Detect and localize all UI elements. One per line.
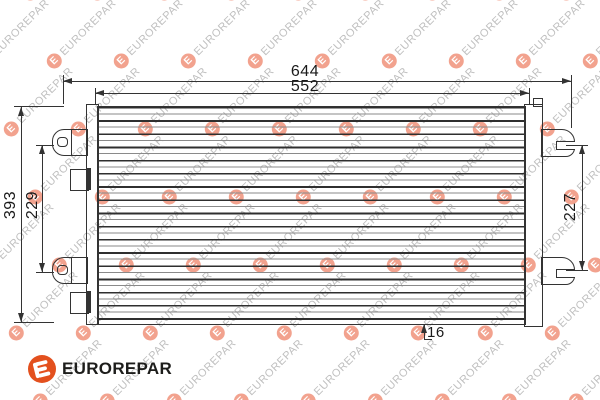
dim-line-left-mount-pitch <box>42 145 43 272</box>
watermark-item: EEUROREPAR <box>355 0 431 4</box>
watermark-text: EUROREPAR <box>124 0 185 58</box>
bracket-seam <box>71 130 72 155</box>
dim-line-overall-height <box>21 107 22 322</box>
arrowhead-up-icon <box>579 145 585 154</box>
eurorepar-mark-icon: E <box>585 254 600 275</box>
watermark-item: EEUROREPAR <box>221 0 297 4</box>
watermark-text: EUROREPAR <box>512 337 573 398</box>
watermark-text: EUROREPAR <box>244 337 305 398</box>
watermark-item: EEUROREPAR <box>365 336 441 400</box>
watermark-text: EUROREPAR <box>14 65 75 126</box>
bracket-hole-icon <box>57 265 68 275</box>
watermark-text: EUROREPAR <box>0 0 51 58</box>
watermark-item: EEUROREPAR <box>499 336 575 400</box>
mounting-bracket-lower-left <box>52 257 88 284</box>
watermark-item: EEUROREPAR <box>432 336 508 400</box>
mounting-pad-lower-left <box>87 291 91 313</box>
mounting-bracket-upper-right <box>541 129 575 157</box>
brand-wordmark: EUROREPAR <box>62 359 172 379</box>
watermark-item: EEUROREPAR <box>312 0 388 72</box>
watermark-item: EEUROREPAR <box>422 0 498 4</box>
ext-line <box>566 270 588 271</box>
brand-logo: EUROREPAR <box>28 355 172 383</box>
watermark-text: EUROREPAR <box>593 0 600 58</box>
mounting-pad-upper-left <box>87 168 91 190</box>
dim-label-depth: 16 <box>427 325 449 340</box>
arrowhead-up-icon <box>18 107 24 116</box>
watermark-text: EUROREPAR <box>526 0 587 58</box>
mounting-bracket-upper-left <box>52 129 88 156</box>
watermark-item: EEUROREPAR <box>154 0 230 4</box>
bracket-hole-icon <box>57 137 68 147</box>
right-header-top-stub <box>533 98 543 107</box>
mounting-bracket-lower-right <box>541 257 575 285</box>
dim-label-overall-height: 393 <box>3 185 19 225</box>
watermark-item: EEUROREPAR <box>298 336 374 400</box>
ext-line <box>36 272 54 273</box>
arrowhead-down-icon <box>18 313 24 322</box>
watermark-item: EEUROREPAR <box>245 0 321 72</box>
watermark-text: EUROREPAR <box>445 337 506 398</box>
arrowhead-down-icon <box>579 261 585 270</box>
watermark-text: EUROREPAR <box>574 133 600 194</box>
watermark-text: EUROREPAR <box>177 337 238 398</box>
arrowhead-down-icon <box>39 263 45 272</box>
watermark-item: EEUROREPAR <box>87 0 163 4</box>
watermark-item: EEUROREPAR <box>164 336 240 400</box>
watermark-item: EEUROREPAR <box>44 0 120 72</box>
watermark-item: EEUROREPAR <box>446 0 522 72</box>
technical-drawing-page: EEUROREPAREEUROREPAREEUROREPAREEUROREPAR… <box>0 0 600 400</box>
watermark-text: EUROREPAR <box>57 0 118 58</box>
watermark-text: EUROREPAR <box>311 337 372 398</box>
watermark-text: EUROREPAR <box>392 0 453 58</box>
watermark-text: EUROREPAR <box>579 337 600 398</box>
arrowhead-left-icon <box>95 90 104 96</box>
watermark-item: EEUROREPAR <box>513 0 589 72</box>
watermark-item: EEUROREPAR <box>20 0 96 4</box>
watermark-item: EEUROREPAR <box>231 336 307 400</box>
watermark-text: EUROREPAR <box>191 0 252 58</box>
dim-label-core-width: 552 <box>283 79 327 95</box>
dim-label-left-mount-pitch: 229 <box>25 185 41 225</box>
arrowhead-left-icon <box>63 78 72 84</box>
watermark-text: EUROREPAR <box>378 337 439 398</box>
dim-line-right-mount-pitch <box>582 145 583 270</box>
ext-line <box>14 322 54 323</box>
watermark-item: EEUROREPAR <box>489 0 565 4</box>
ext-line <box>571 75 572 128</box>
condenser-core <box>97 106 526 325</box>
arrowhead-right-icon <box>520 90 529 96</box>
dim-label-right-mount-pitch: 227 <box>563 187 579 227</box>
watermark-text: EUROREPAR <box>258 0 319 58</box>
bracket-seam <box>71 258 72 283</box>
ext-line <box>529 88 530 105</box>
watermark-item: EEUROREPAR <box>178 0 254 72</box>
watermark-item: EEUROREPAR <box>111 0 187 72</box>
eurorepar-logo-icon <box>28 355 56 383</box>
watermark-text: EUROREPAR <box>459 0 520 58</box>
watermark-item: EEUROREPAR <box>379 0 455 72</box>
watermark-item: EEUROREPAR <box>288 0 364 4</box>
watermark-text: EUROREPAR <box>325 0 386 58</box>
watermark-text: EUROREPAR <box>550 65 600 126</box>
arrowhead-up-icon <box>39 145 45 154</box>
arrowhead-right-icon <box>562 78 571 84</box>
